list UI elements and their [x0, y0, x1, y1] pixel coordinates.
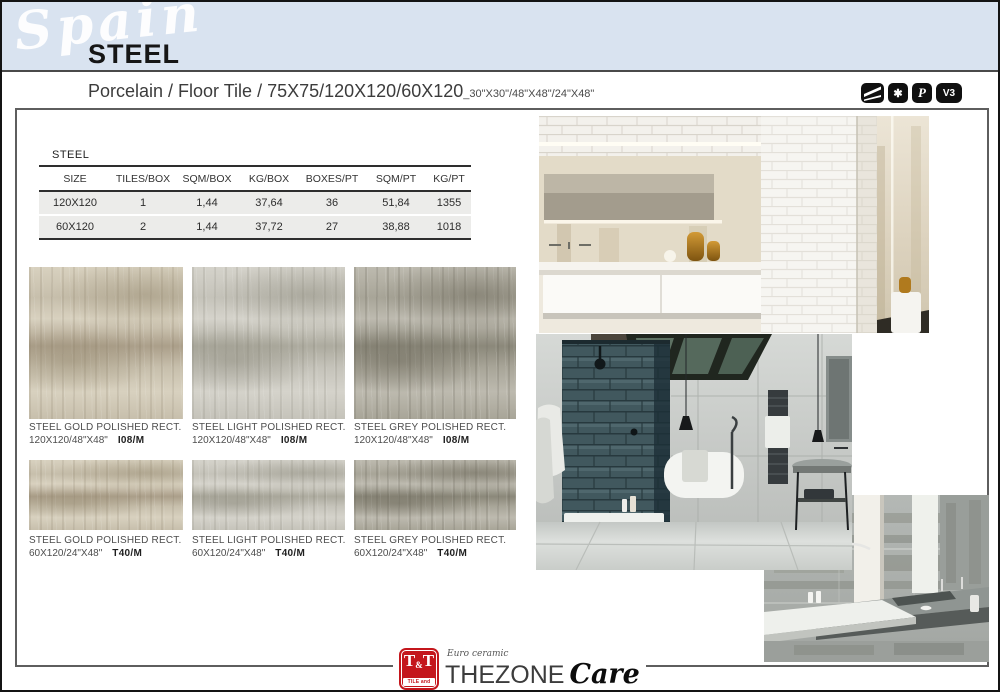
cell: 120X120 [39, 191, 111, 215]
amber-jar [687, 232, 704, 261]
cell: 1355 [427, 191, 471, 215]
tile-swatch-steel-gold-120x120 [29, 267, 183, 419]
jar-white [664, 250, 676, 262]
product-label: STEEL GOLD POLISHED RECT. 120X120/48"X48… [29, 421, 191, 447]
product-label: STEEL LIGHT POLISHED RECT. 60X120/24"X48… [192, 534, 354, 560]
col-kg-box: KG/BOX [239, 166, 299, 191]
tile-swatch-steel-grey-120x120 [354, 267, 516, 419]
cell: 38,88 [365, 215, 427, 239]
packing-spec-table: SIZE TILES/BOX SQM/BOX KG/BOX BOXES/PT S… [39, 165, 471, 240]
spec-table-title: STEEL [52, 149, 89, 161]
brand-tagline: Euro ceramic [447, 649, 640, 659]
col-sqm-pt: SQM/PT [365, 166, 427, 191]
product-label: STEEL LIGHT POLISHED RECT. 120X120/48"X4… [192, 421, 354, 447]
rectified-edge-icon [861, 83, 884, 103]
table-header-row: SIZE TILES/BOX SQM/BOX KG/BOX BOXES/PT S… [39, 166, 471, 191]
tile-swatch-steel-grey-60x120 [354, 460, 516, 530]
star-rating-icon: ✱ [888, 83, 908, 103]
cell: 1018 [427, 215, 471, 239]
tile-swatch-steel-light-120x120 [192, 267, 345, 419]
table-row: 60X120 2 1,44 37,72 27 38,88 1018 [39, 215, 471, 239]
tt-logo: T&T TILE and TRADE [399, 648, 439, 690]
product-label: STEEL GREY POLISHED RECT. 120X120/48"X48… [354, 421, 516, 447]
cell: 60X120 [39, 215, 111, 239]
col-tiles-box: TILES/BOX [111, 166, 175, 191]
shower-head [595, 359, 606, 370]
cell: 1 [111, 191, 175, 215]
vanity-counter [539, 262, 784, 270]
lifestyle-photo-brick-bathroom [539, 116, 929, 333]
brand-name: THEZONE [445, 661, 564, 690]
content-frame: STEEL SIZE TILES/BOX SQM/BOX KG/BOX BOXE… [15, 108, 989, 667]
cell: 36 [299, 191, 365, 215]
cell: 1,44 [175, 215, 239, 239]
subtitle-main: Porcelain / Floor Tile / 75X75/120X120/6… [88, 81, 463, 101]
tile-swatch-steel-light-60x120 [192, 460, 345, 530]
stool [891, 292, 921, 333]
feature-badges: ✱ P V3 [861, 83, 962, 103]
product-label: STEEL GOLD POLISHED RECT. 60X120/24"X48"… [29, 534, 191, 560]
brand-block: Euro ceramic THEZONE Care [445, 649, 640, 690]
tt-logo-subtext: TILE and TRADE [403, 678, 435, 686]
col-sqm-box: SQM/BOX [175, 166, 239, 191]
collection-title: STEEL [88, 39, 180, 70]
shade-variation-icon: V3 [936, 83, 962, 103]
footer-brand: T&T TILE and TRADE Euro ceramic THEZONE … [393, 646, 646, 692]
cell: 2 [111, 215, 175, 239]
catalog-page: Spain STEEL Porcelain / Floor Tile / 75X… [0, 0, 1000, 692]
polished-surface-icon: P [912, 83, 932, 103]
tt-logo-text: T&T [399, 652, 439, 674]
towel-on-tub [682, 450, 708, 482]
cell: 1,44 [175, 191, 239, 215]
bright-window-strip [912, 495, 938, 593]
brand-script: Care [569, 659, 639, 690]
product-subtitle: Porcelain / Floor Tile / 75X75/120X120/6… [88, 81, 594, 102]
folded-towels [804, 489, 834, 499]
product-label: STEEL GREY POLISHED RECT. 60X120/24"X48"… [354, 534, 516, 560]
cell: 27 [299, 215, 365, 239]
cell: 37,64 [239, 191, 299, 215]
teal-brick-shower-wall [562, 340, 670, 522]
hanging-towel [765, 416, 790, 448]
col-boxes-pt: BOXES/PT [299, 166, 365, 191]
table-row: 120X120 1 1,44 37,64 36 51,84 1355 [39, 191, 471, 215]
col-size: SIZE [39, 166, 111, 191]
subtitle-inches: _30"X30"/48"X48"/24"X48" [463, 88, 594, 100]
amber-jar [707, 241, 720, 261]
cell: 51,84 [365, 191, 427, 215]
tile-swatch-steel-gold-60x120 [29, 460, 183, 530]
header-band: Spain STEEL [2, 2, 998, 72]
col-kg-pt: KG/PT [427, 166, 471, 191]
lifestyle-photo-shower-bathroom [536, 334, 852, 570]
cell: 37,72 [239, 215, 299, 239]
